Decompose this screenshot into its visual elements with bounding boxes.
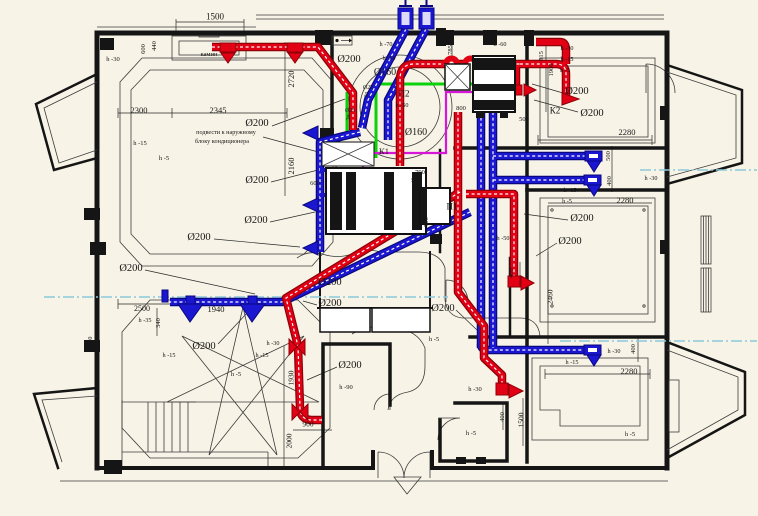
- ceiling-height-label: h -30: [645, 176, 658, 182]
- duct-diameter-label: Ø200: [558, 237, 581, 248]
- ceiling-height-label: h -30: [267, 341, 280, 347]
- shaft-anchor-icon: [399, 0, 433, 6]
- dimension-label: 600: [141, 44, 148, 54]
- duct-diameter-label: Ø200: [318, 299, 341, 310]
- ceiling-height-label: h -50: [383, 56, 396, 62]
- dimension-label: 1900: [549, 64, 556, 77]
- dimension-label: 790: [415, 170, 425, 177]
- duct-diameter-label: Ø200: [431, 304, 454, 315]
- duct-diameter-label: Ø200: [187, 233, 210, 244]
- ceiling-height-label: h -50: [396, 103, 409, 109]
- duct-diameter-label: Ø200: [245, 119, 268, 130]
- ceiling-height-label: h -30: [106, 57, 120, 64]
- dimension-label: 1500: [517, 413, 525, 428]
- duct-diameter-label: Ø200: [337, 55, 360, 66]
- dimension-label: 2460: [546, 290, 554, 305]
- dimension-label: 900: [302, 420, 313, 428]
- dimension-label: 2300: [131, 106, 148, 115]
- ceiling-height-label: h -60: [494, 42, 507, 48]
- ceiling-height-label: h -15: [566, 360, 579, 366]
- ceiling-height-label: h -35: [139, 318, 152, 324]
- ceiling-height-label: h -30: [608, 349, 621, 355]
- dimension-label: 1500: [206, 13, 224, 22]
- exhaust-shaft: [398, 0, 434, 29]
- system-tag: П1: [447, 203, 458, 212]
- ceiling-height-label: h -70: [380, 42, 393, 48]
- duct-diameter-label: Ø160: [405, 128, 427, 138]
- duct-diameter-label: Ø25: [345, 109, 355, 115]
- ceiling-height-label: h -5: [562, 199, 572, 205]
- dimension-label: 2280: [621, 367, 638, 376]
- duct-diameter-label: Ø200: [192, 342, 215, 353]
- dimension-label: 915: [539, 51, 546, 61]
- duct-diameter-label: Ø200: [318, 278, 341, 289]
- duct-diameter-label: Ø200: [570, 214, 593, 225]
- dimension-label: 575: [411, 178, 421, 185]
- dimension-label: 2280: [617, 196, 634, 205]
- dimension-label: 1940: [208, 305, 225, 314]
- vent-marker-icon: [332, 36, 352, 45]
- dimension-label: 400: [500, 412, 507, 422]
- duct-diameter-label: Ø200: [119, 264, 142, 275]
- dimension-label: 785: [448, 45, 455, 55]
- floor-plan: 1500камин600440h -30230023452720h -15h -…: [0, 0, 758, 516]
- dimension-label: 1930: [287, 371, 295, 386]
- system-tag: П2: [399, 90, 410, 99]
- dimension-label: 700: [424, 217, 431, 227]
- duct-diameter-label: Ø200: [244, 216, 267, 227]
- dimension-label: 400: [607, 176, 614, 186]
- note-label: подвести к наружному: [196, 130, 256, 136]
- ceiling-height-label: h -50: [497, 236, 510, 242]
- ceiling-height-label: h -15: [163, 353, 176, 359]
- ceiling-height-label: h -15: [256, 353, 269, 359]
- room-label: камин: [200, 52, 217, 59]
- duct-diameter-label: Д: [364, 93, 368, 99]
- system-tag: К2: [550, 107, 561, 116]
- exhaust-diffuser-icon: [584, 151, 602, 366]
- ceiling-height-label: h -15: [564, 188, 577, 194]
- duct-diameter-label: Ø200: [338, 361, 361, 372]
- ceiling-height-label: h -30: [468, 387, 482, 394]
- dimension-label: 440: [152, 41, 159, 51]
- flex-connector: [322, 142, 374, 166]
- dimension-label: 2500: [134, 305, 150, 313]
- dimension-label: 340: [156, 318, 163, 328]
- dimension-label: 500: [519, 117, 529, 124]
- duct-diameter-label: Ø200: [580, 109, 603, 120]
- ceiling-height-label: h -5: [159, 156, 169, 163]
- dimension-label: 2160: [287, 158, 296, 175]
- ceiling-height-label: h -30: [88, 337, 94, 350]
- dimension-label: 500: [606, 151, 613, 161]
- dimension-label: 2720: [287, 71, 296, 88]
- dimension-label: 2345: [210, 106, 227, 115]
- ceiling-height-label: h -15: [133, 141, 147, 148]
- ceiling-height-label: h -5: [466, 431, 476, 438]
- ceiling-height-label: h -5: [560, 68, 570, 74]
- flex-connector: [445, 64, 470, 90]
- duct-diameter-label: Ø200: [245, 176, 268, 187]
- ceiling-height-label: h -15: [561, 57, 574, 63]
- dimension-label: 800: [456, 106, 466, 113]
- duct-diameter-label: Ø200: [565, 87, 588, 98]
- dimension-label: 400: [509, 268, 516, 278]
- ceiling-height-label: h -5: [429, 337, 439, 344]
- ceiling-height-label: h -5: [231, 372, 241, 379]
- duct-diameter-label: Д: [346, 116, 350, 122]
- duct-diameter-label: Ø25: [363, 86, 373, 92]
- entrance-arrow-icon: [394, 477, 421, 494]
- ceiling-height-label: h -5: [625, 432, 635, 439]
- dimension-label: 600: [310, 181, 320, 188]
- dimension-label: 2000: [285, 434, 293, 449]
- ceiling-height-label: h -90: [339, 385, 353, 392]
- window: [669, 216, 711, 432]
- ceiling-height-label: h -30: [561, 46, 574, 52]
- note-label: блоку кондиционера: [195, 139, 249, 145]
- system-tag: К1: [379, 147, 389, 156]
- dimension-label: 2280: [619, 128, 636, 137]
- duct-diameter-label: Ø160: [374, 68, 396, 78]
- dimension-label: 400: [631, 344, 638, 354]
